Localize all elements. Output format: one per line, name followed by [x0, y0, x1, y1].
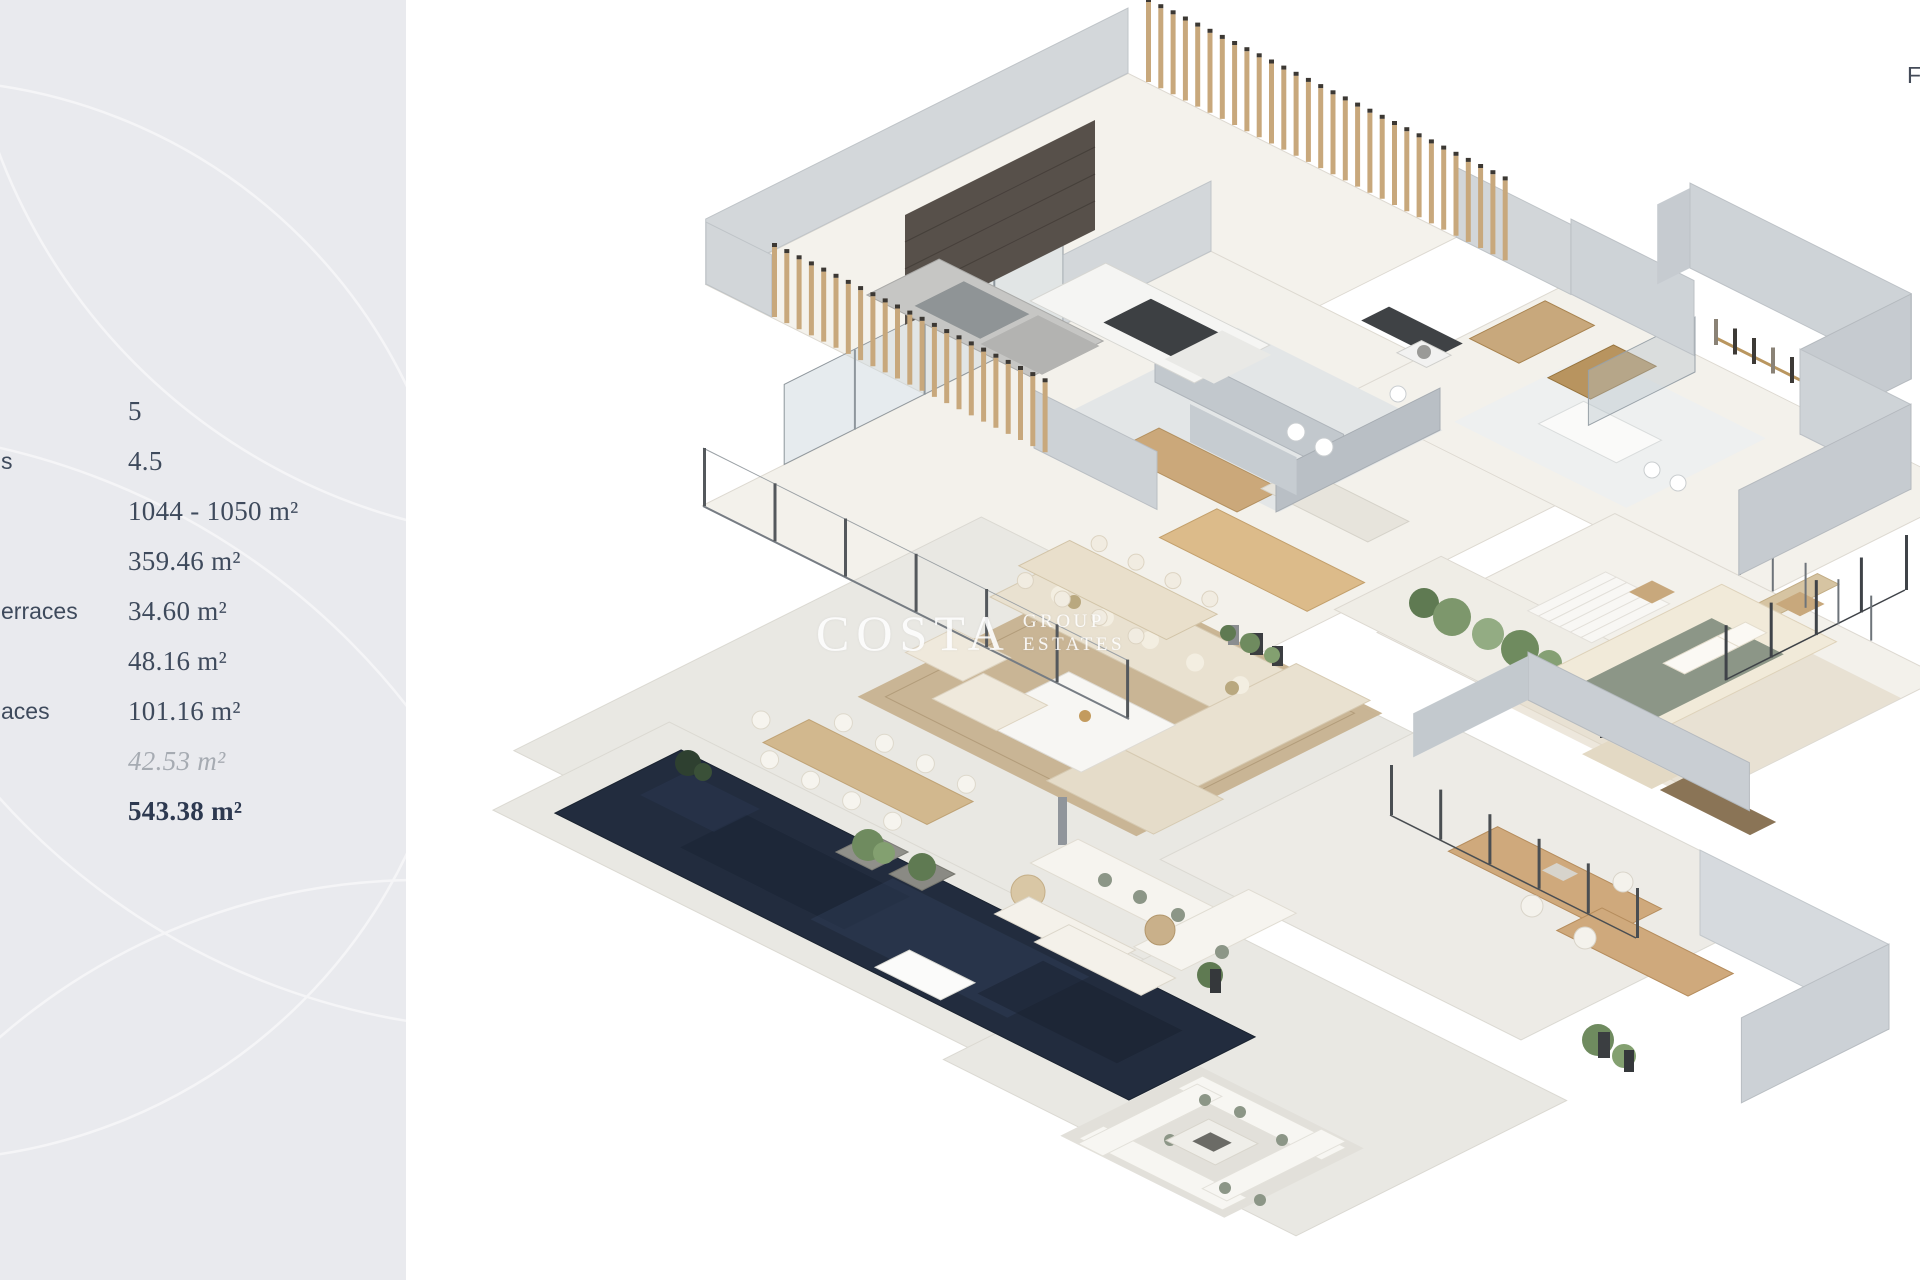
spec-value: 48.16 m²: [128, 636, 227, 686]
spec-row: erraces34.60 m²: [0, 586, 406, 636]
spec-row: s4.5: [0, 436, 406, 486]
spec-label-fragment: s: [1, 436, 13, 486]
floor-plan-rendering: [406, 0, 1920, 1280]
spec-label-fragment: erraces: [1, 586, 78, 636]
spec-value: 359.46 m²: [128, 536, 241, 586]
spec-value: 5: [128, 386, 142, 436]
spec-row: 48.16 m²: [0, 636, 406, 686]
spec-row: aces101.16 m²: [0, 686, 406, 736]
spec-row: 543.38 m²: [0, 786, 406, 836]
spec-value: 42.53 m²: [128, 736, 226, 786]
spec-row: 359.46 m²: [0, 536, 406, 586]
spec-label-fragment: aces: [1, 686, 50, 736]
spec-row: 5: [0, 386, 406, 436]
spec-value: 4.5: [128, 436, 163, 486]
corner-label: F: [1907, 62, 1920, 89]
page: 5s4.51044 - 1050 m²359.46 m²erraces34.60…: [0, 0, 1920, 1280]
spec-row: 42.53 m²: [0, 736, 406, 786]
spec-value: 101.16 m²: [128, 686, 241, 736]
spec-rows: 5s4.51044 - 1050 m²359.46 m²erraces34.60…: [0, 386, 406, 836]
spec-panel: 5s4.51044 - 1050 m²359.46 m²erraces34.60…: [0, 0, 406, 1280]
spec-value: 34.60 m²: [128, 586, 227, 636]
spec-row: 1044 - 1050 m²: [0, 486, 406, 536]
spec-value: 1044 - 1050 m²: [128, 486, 299, 536]
spec-value: 543.38 m²: [128, 786, 242, 836]
